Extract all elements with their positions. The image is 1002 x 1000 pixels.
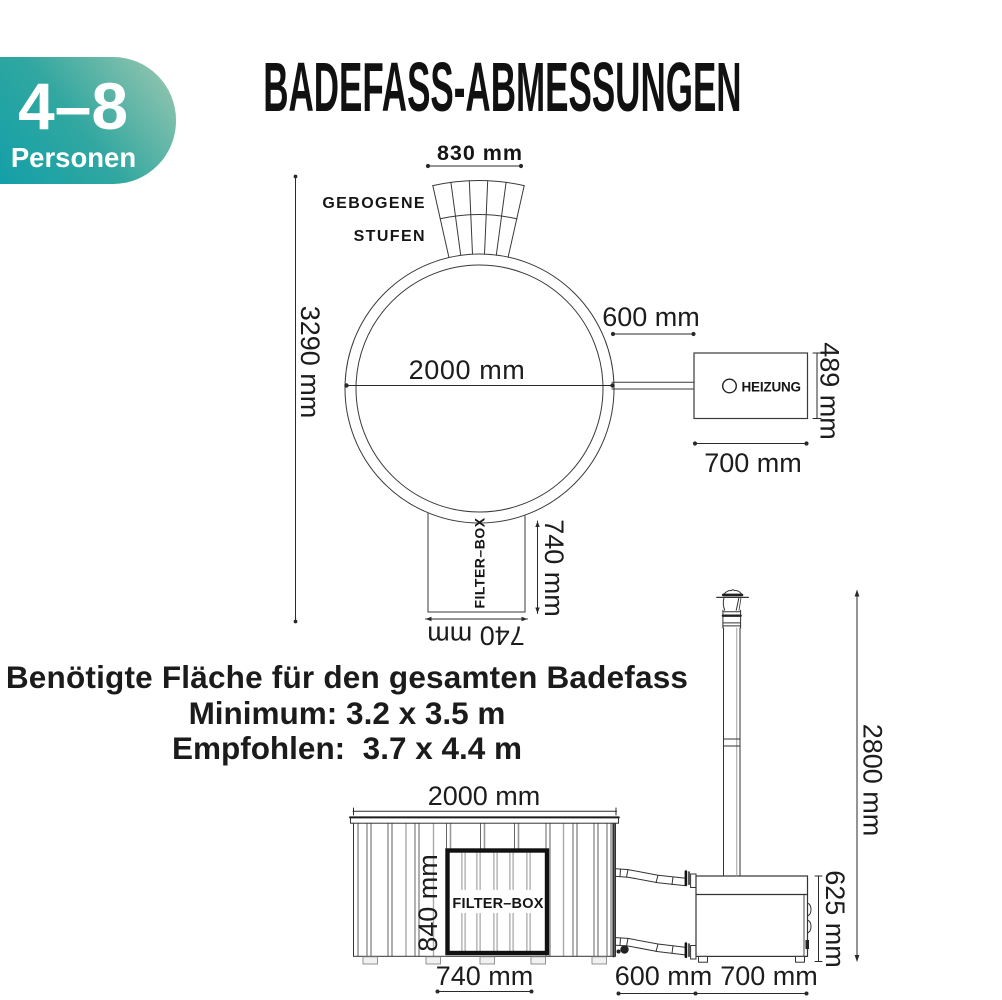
svg-text:740 mm: 740 mm <box>539 519 569 617</box>
svg-text:STUFEN: STUFEN <box>354 228 426 245</box>
svg-text:2000 mm: 2000 mm <box>428 781 541 811</box>
svg-text:HEIZUNG: HEIZUNG <box>742 380 801 395</box>
svg-text:740 mm: 740 mm <box>427 621 525 651</box>
svg-text:840 mm: 840 mm <box>413 854 443 952</box>
svg-text:700 mm: 700 mm <box>720 961 818 991</box>
svg-text:FILTER–BOX: FILTER–BOX <box>452 896 543 912</box>
svg-text:700 mm: 700 mm <box>704 448 802 478</box>
svg-text:2800 mm: 2800 mm <box>858 724 888 837</box>
svg-text:3290 mm: 3290 mm <box>295 306 325 419</box>
svg-text:489 mm: 489 mm <box>815 342 845 440</box>
svg-text:625 mm: 625 mm <box>820 870 850 968</box>
svg-text:FILTER–BOX: FILTER–BOX <box>472 517 488 608</box>
svg-text:600 mm: 600 mm <box>602 302 700 332</box>
svg-text:600 mm: 600 mm <box>615 961 713 991</box>
svg-text:830 mm: 830 mm <box>437 141 523 165</box>
svg-text:2000 mm: 2000 mm <box>409 355 526 385</box>
svg-text:740 mm: 740 mm <box>436 961 534 991</box>
svg-text:GEBOGENE: GEBOGENE <box>322 195 426 212</box>
